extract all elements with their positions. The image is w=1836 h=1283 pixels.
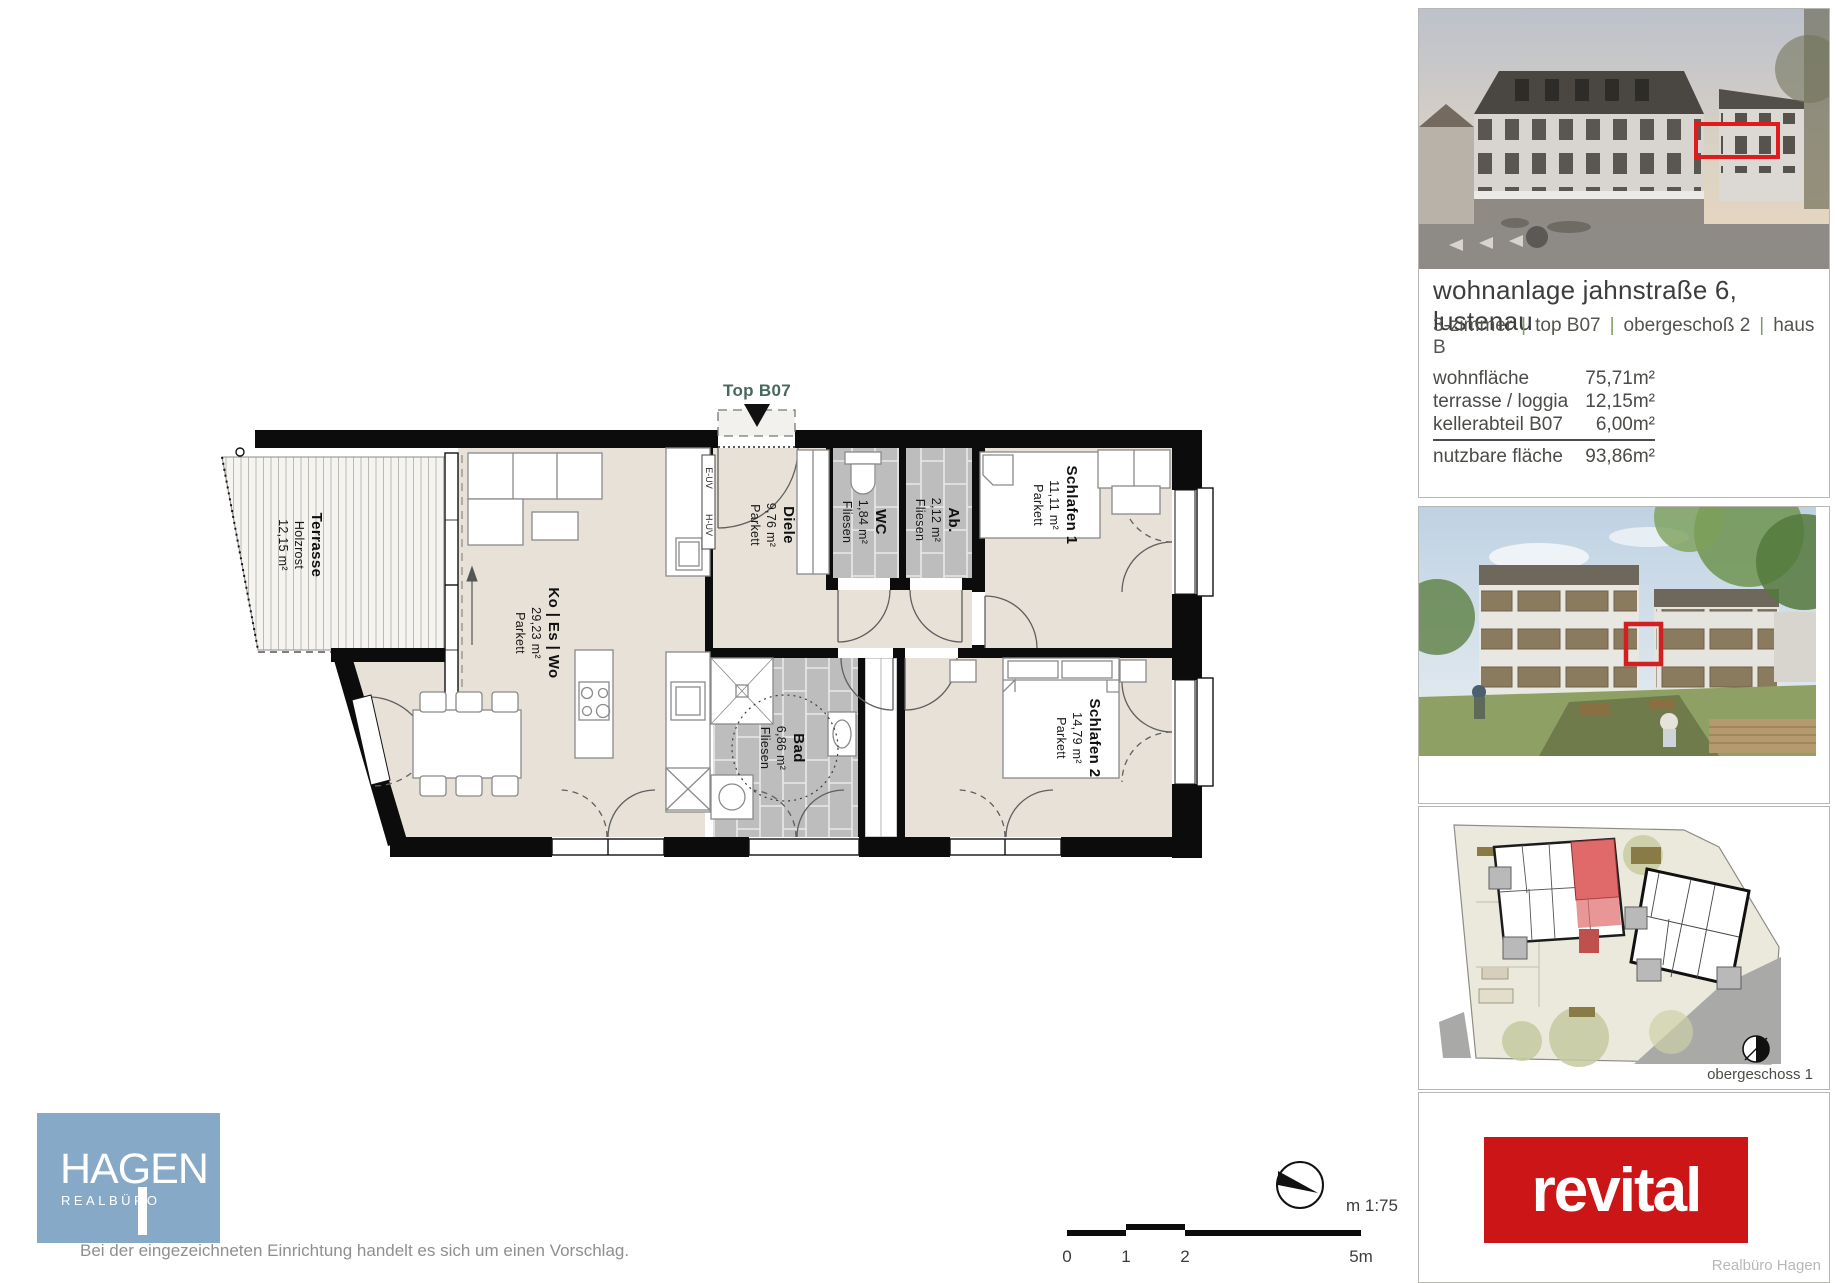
scale-tick: 2: [1180, 1247, 1189, 1266]
area-label: wohnfläche: [1433, 367, 1529, 390]
hagen-logo-bar: [138, 1187, 147, 1235]
subtitle-top: top B07: [1535, 315, 1601, 336]
svg-text:WC: WC: [872, 509, 889, 535]
separator: |: [1610, 315, 1615, 336]
label-diele: Diele 9,76 m² Parkett: [748, 503, 797, 547]
chair: [492, 776, 518, 796]
label-terrasse: Terrasse Holzrost 12,15 m²: [276, 513, 325, 578]
svg-text:29,23 m²: 29,23 m²: [529, 607, 543, 659]
svg-text:Bad: Bad: [790, 733, 807, 763]
nightstand: [1120, 660, 1146, 682]
euv-label: E-UV: [704, 467, 714, 489]
terrace: [222, 448, 447, 652]
sofa-chaise: [468, 499, 523, 545]
area-label: nutzbare fläche: [1433, 445, 1563, 468]
sidebar-siteplan-panel: obergeschoss 1: [1418, 806, 1830, 1090]
chair: [492, 692, 518, 712]
chair: [456, 692, 482, 712]
svg-text:Schlafen 2: Schlafen 2: [1086, 698, 1103, 777]
svg-text:Parkett: Parkett: [1031, 484, 1045, 526]
chair: [456, 776, 482, 796]
site-plan: [1419, 807, 1829, 1089]
photo-exterior-garden: [1419, 507, 1816, 756]
chair: [420, 776, 446, 796]
svg-text:Fliesen: Fliesen: [913, 499, 927, 541]
technical-labels: E-UV H-UV: [702, 455, 715, 549]
washbasin: [828, 712, 856, 756]
nightstand: [950, 660, 976, 682]
area-value: 93,86m²: [1585, 445, 1655, 468]
svg-text:Fliesen: Fliesen: [758, 727, 772, 769]
area-value: 6,00m²: [1596, 413, 1655, 436]
scale-ratio-label: m 1:75: [1346, 1196, 1398, 1215]
svg-text:14,79 m²: 14,79 m²: [1070, 712, 1084, 764]
downpipe-icon: [236, 448, 244, 456]
pillow: [1008, 661, 1058, 678]
svg-text:Parkett: Parkett: [748, 504, 762, 546]
sidebar-brand-panel: revital Realbüro Hagen: [1418, 1092, 1830, 1283]
sink: [676, 538, 702, 570]
svg-text:Ab.: Ab.: [945, 507, 962, 532]
svg-text:Parkett: Parkett: [1054, 717, 1068, 759]
area-table: wohnfläche 75,71m² terrasse / loggia 12,…: [1433, 367, 1655, 468]
area-label: kellerabteil B07: [1433, 413, 1563, 436]
scale-bar: 0 1 2 5m: [1062, 1224, 1373, 1266]
svg-text:11,11 m²: 11,11 m²: [1047, 480, 1061, 530]
toilet: [845, 452, 881, 464]
separator: |: [1521, 315, 1526, 336]
area-value: 75,71m²: [1585, 367, 1655, 390]
scale-tick: 1: [1121, 1247, 1130, 1266]
area-row-total: nutzbare fläche 93,86m²: [1433, 441, 1655, 468]
area-row-terrasse: terrasse / loggia 12,15m²: [1433, 390, 1655, 413]
svg-text:12,15 m²: 12,15 m²: [276, 519, 290, 571]
svg-text:1,84 m²: 1,84 m²: [856, 500, 870, 544]
siteplan-north-icon: [1743, 1036, 1769, 1062]
svg-text:Diele: Diele: [780, 506, 797, 544]
washing-machine: [711, 775, 753, 819]
subtitle-rooms: 3-zimmer: [1433, 315, 1512, 336]
north-arrow-icon: [1277, 1162, 1323, 1208]
subtitle-floor: obergeschoß 2: [1624, 315, 1751, 336]
chair: [420, 692, 446, 712]
separator: |: [1759, 315, 1764, 336]
revital-logo-text: revital: [1532, 1155, 1701, 1226]
area-row-wohnflaeche: wohnfläche 75,71m²: [1433, 367, 1655, 390]
toilet-bowl: [851, 464, 875, 494]
sidebar-garden-panel: [1418, 506, 1830, 804]
area-value: 12,15m²: [1585, 390, 1655, 413]
revital-logo: revital: [1484, 1137, 1748, 1243]
photo-exterior-street: [1419, 9, 1829, 269]
scale-tick: 5m: [1349, 1247, 1373, 1266]
coffee-table: [532, 512, 578, 540]
hagen-logo: HAGEN REALBÜRO: [37, 1113, 220, 1243]
scale-tick: 0: [1062, 1247, 1071, 1266]
svg-text:6,86 m²: 6,86 m²: [774, 726, 788, 770]
siteplan-caption: obergeschoss 1: [1707, 1066, 1813, 1083]
svg-text:2,12 m²: 2,12 m²: [929, 498, 943, 542]
siteplan-highlight-unit: [1571, 839, 1619, 900]
svg-text:Schlafen 1: Schlafen 1: [1063, 465, 1080, 544]
huv-label: H-UV: [704, 514, 714, 536]
siteplan-building-b: [1625, 869, 1749, 989]
hagen-logo-text: HAGEN: [60, 1145, 208, 1194]
sofa: [468, 453, 602, 499]
svg-text:Fliesen: Fliesen: [840, 501, 854, 543]
area-label: terrasse / loggia: [1433, 390, 1568, 413]
svg-text:Terrasse: Terrasse: [308, 513, 325, 578]
svg-text:9,76 m²: 9,76 m²: [764, 503, 778, 547]
sidebar-header-panel: wohnanlage jahnstraße 6, lustenau 3-zimm…: [1418, 8, 1830, 498]
svg-text:Holzrost: Holzrost: [292, 521, 306, 569]
unit-subtitle: 3-zimmer|top B07|obergeschoß 2|haus B: [1433, 315, 1829, 359]
dining-table: [413, 710, 521, 778]
area-row-keller: kellerabteil B07 6,00m²: [1433, 413, 1655, 441]
unit-marker-label: Top B07: [723, 381, 791, 400]
desk: [1112, 486, 1160, 514]
svg-text:Parkett: Parkett: [513, 612, 527, 654]
pillow: [1062, 661, 1112, 678]
credit-text: Realbüro Hagen: [1712, 1257, 1821, 1274]
disclaimer-text: Bei der eingezeichneten Einrichtung hand…: [80, 1241, 629, 1261]
svg-text:Ko | Es | Wo: Ko | Es | Wo: [545, 587, 562, 678]
